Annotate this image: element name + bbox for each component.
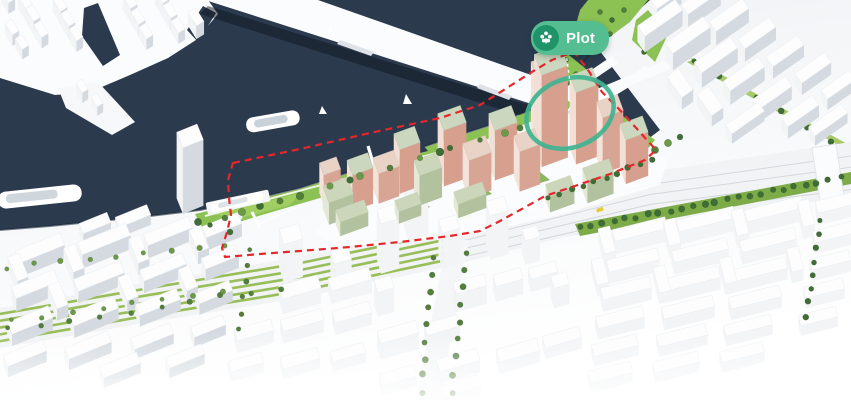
plot-badge-label: Plot	[566, 31, 595, 46]
foliage-icon	[533, 25, 559, 51]
foliage-icon-glyph	[538, 30, 554, 46]
scene-svg	[0, 0, 851, 400]
plot-badge[interactable]: Plot	[531, 21, 609, 55]
masterplan-render: Plot	[0, 0, 851, 400]
